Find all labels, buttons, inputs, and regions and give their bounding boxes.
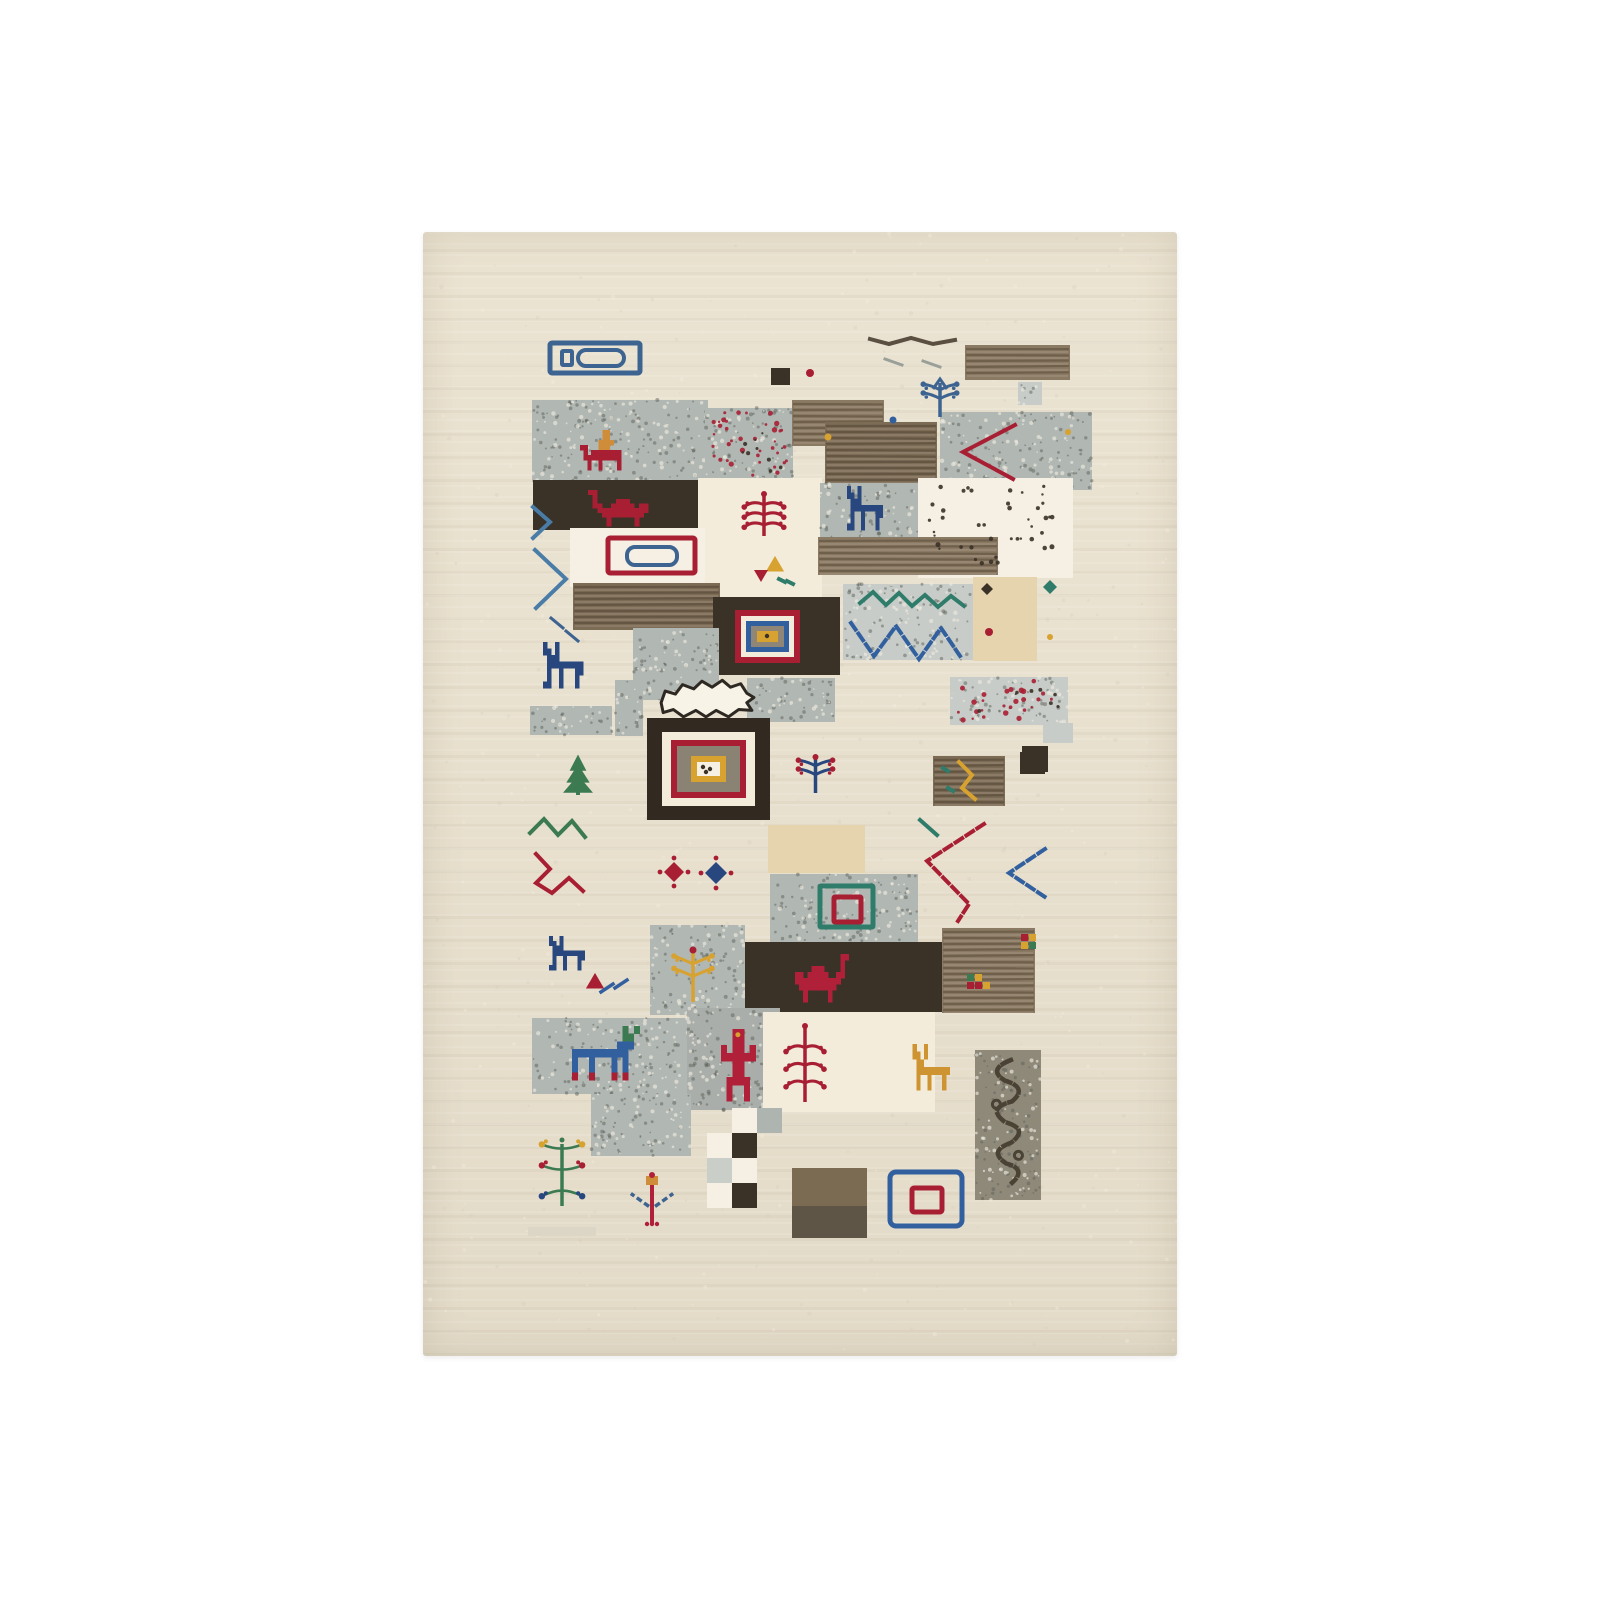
blue-diamond — [699, 856, 734, 891]
teal-zigzag-left-lower — [535, 550, 566, 608]
gray-square-small-top-right — [1018, 382, 1042, 405]
navy-red-tree — [796, 754, 836, 793]
red-fleck-beige — [985, 628, 993, 636]
teal-dash-mid — [920, 820, 937, 835]
beige-block-center — [768, 825, 865, 873]
gray-block-lower — [590, 1093, 692, 1156]
yellow-dot-beige — [1047, 634, 1053, 640]
brown-strip-far-top-right — [965, 345, 1070, 380]
teal-diamond-beige — [1043, 580, 1057, 594]
gray-dashes-top — [885, 359, 940, 367]
rug-photo — [423, 232, 1177, 1356]
red-chevron-large — [927, 824, 984, 921]
gray-block-red-speckled — [704, 406, 794, 486]
blue-frame-motif-top — [550, 343, 640, 373]
blue-dot-brown-block — [890, 417, 897, 424]
gray-block-medallion-3 — [770, 873, 918, 945]
brown-strip-center-right — [818, 537, 998, 575]
dark-square-tiny-top — [771, 368, 790, 385]
gray-block-bottom-center — [650, 924, 747, 1017]
gray-square-right-small — [1043, 723, 1073, 743]
medallion-2 — [662, 732, 755, 806]
blue-goat-3 — [549, 936, 585, 970]
yellow-dot-top-right — [1065, 429, 1071, 435]
red-plant-blue-arms — [631, 1172, 673, 1226]
red-triangle-bottom — [586, 973, 604, 989]
red-squiggle — [536, 854, 583, 893]
gray-tail-mid-left — [614, 680, 644, 736]
green-pine-tree — [563, 755, 593, 795]
faint-strip-bottom-left — [528, 1227, 596, 1236]
blue-plant-top — [920, 379, 959, 417]
blue-goat-2 — [543, 642, 583, 688]
checkerboard — [707, 1108, 782, 1208]
green-zigzag — [530, 819, 585, 837]
photo-backdrop — [0, 0, 1600, 1600]
gray-block-goat — [819, 482, 922, 545]
gray-strip-left — [530, 705, 613, 737]
red-dot-top — [806, 369, 814, 377]
vine-block-base — [974, 1050, 1041, 1202]
medallion-1 — [735, 610, 800, 663]
dark-square-mid-right — [1020, 752, 1045, 774]
brown-block-bottom-lower — [792, 1206, 867, 1238]
blue-frame-motif-bottom — [890, 1172, 962, 1226]
cream-block-bottom — [763, 1012, 935, 1112]
yellow-dot-brown-block — [825, 434, 832, 441]
gray-block-cloud-right — [747, 676, 835, 722]
rug-artwork — [423, 232, 1177, 1356]
gray-block-top-left — [531, 398, 708, 484]
brown-squiggle-line — [870, 338, 955, 344]
red-diamond — [658, 856, 691, 889]
brown-block-striped-left — [573, 583, 720, 630]
brown-block-bottom-upper — [792, 1168, 867, 1206]
blue-arrow-marks — [601, 980, 627, 992]
flower-plant — [539, 1138, 586, 1207]
